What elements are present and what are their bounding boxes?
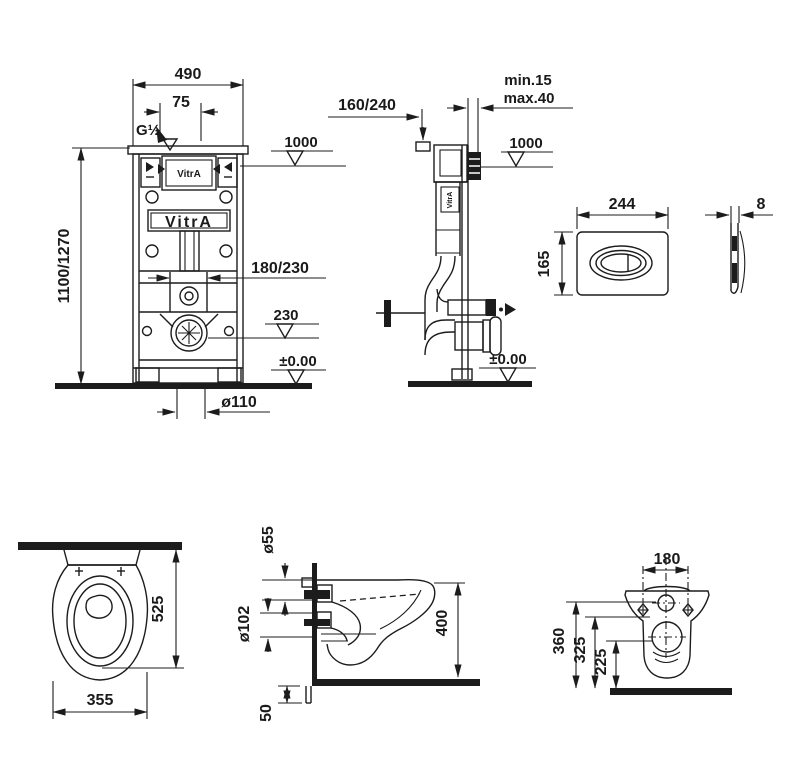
view-frame-front: VitrA VitrA 490 bbox=[55, 66, 346, 419]
dim-height-225: 225 bbox=[593, 649, 610, 676]
brand-logo-panel: VitrA bbox=[165, 214, 213, 231]
view-wc-side: ø55 ø102 400 50 bbox=[236, 526, 480, 722]
dim-wc-width: 355 bbox=[87, 692, 114, 709]
flush-button-icon bbox=[601, 254, 641, 272]
dim-wc-depth: 525 bbox=[150, 596, 167, 623]
datum-triangle-icon bbox=[288, 370, 304, 384]
label-inlet-thread: G½ bbox=[136, 122, 160, 139]
datum-triangle-icon bbox=[508, 152, 524, 166]
datum-outlet-height: 230 bbox=[273, 307, 298, 324]
brand-logo-small: VitrA bbox=[177, 169, 201, 180]
dim-inlet-diameter: ø55 bbox=[260, 526, 277, 554]
dim-height-360: 360 bbox=[551, 628, 568, 655]
floor-line bbox=[610, 688, 732, 695]
brand-logo-tank: VitrA bbox=[447, 192, 454, 209]
dim-inlet-offset: 75 bbox=[172, 94, 190, 111]
datum-button-height: 1000 bbox=[284, 134, 317, 151]
view-flush-plate-front: 244 165 bbox=[536, 196, 668, 295]
wall-line bbox=[18, 542, 182, 550]
dim-plate-thickness: 8 bbox=[757, 196, 766, 213]
datum-floor-level: ±0.00 bbox=[279, 353, 316, 370]
dim-rim-height: 400 bbox=[434, 610, 451, 637]
view-flush-plate-side: 8 bbox=[705, 196, 773, 293]
floor-line bbox=[312, 679, 480, 686]
inlet-funnel-icon bbox=[163, 139, 177, 150]
dim-frame-height: 1100/1270 bbox=[56, 229, 73, 304]
view-frame-side: 160/240 min.15 max.40 VitrA bbox=[328, 72, 573, 384]
dim-drain-diameter: ø110 bbox=[221, 394, 257, 411]
wc-back-outline bbox=[625, 591, 709, 678]
dim-frame-depth: 160/240 bbox=[338, 97, 396, 114]
dim-wall-min: min.15 bbox=[504, 72, 552, 89]
dim-rail-spacing: 180/230 bbox=[251, 260, 309, 277]
dim-frame-width: 490 bbox=[175, 66, 202, 83]
datum-button-height: 1000 bbox=[509, 135, 542, 152]
technical-drawing: VitrA VitrA 490 bbox=[0, 0, 800, 779]
datum-floor-level: ±0.00 bbox=[489, 351, 526, 368]
dim-outlet-diameter: ø102 bbox=[236, 606, 253, 643]
dim-plate-height: 165 bbox=[536, 251, 553, 278]
dim-height-325: 325 bbox=[572, 637, 589, 664]
datum-triangle-icon bbox=[277, 324, 293, 338]
view-wc-top: 525 355 bbox=[18, 542, 184, 719]
datum-triangle-icon bbox=[287, 151, 303, 165]
drawing-canvas: VitrA VitrA 490 bbox=[0, 0, 800, 779]
view-wc-back: 180 360 325 225 bbox=[551, 551, 732, 695]
datum-triangle-icon bbox=[500, 368, 516, 382]
dim-wall-max: max.40 bbox=[504, 90, 555, 107]
dim-plate-width: 244 bbox=[609, 196, 636, 213]
wc-profile-outline bbox=[317, 580, 435, 665]
dim-hole-spacing: 180 bbox=[654, 551, 681, 568]
dim-floor-stub: 50 bbox=[258, 704, 275, 722]
